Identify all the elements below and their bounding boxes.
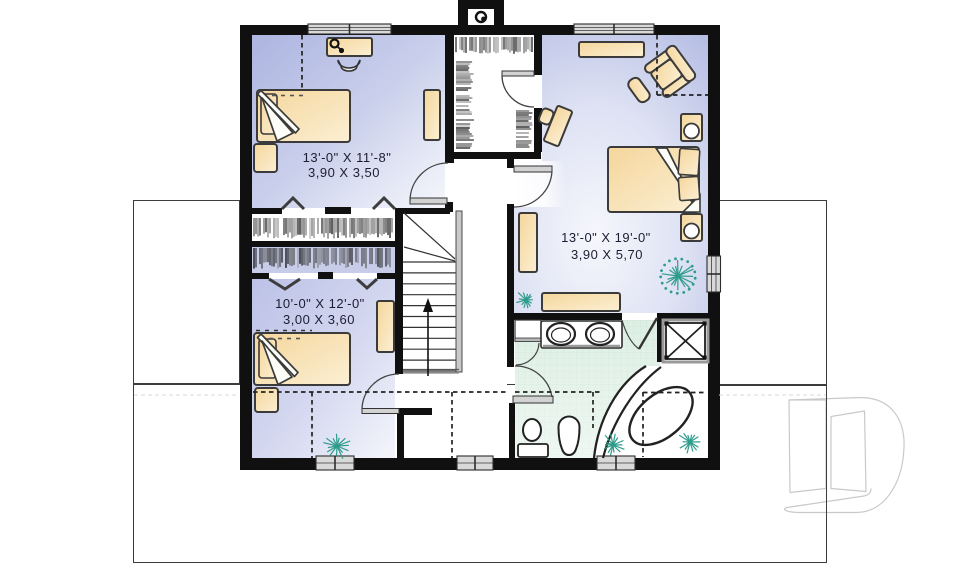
svg-text:13'-0" X 19'-0": 13'-0" X 19'-0" (561, 230, 651, 245)
svg-text:10'-0" X 12'-0": 10'-0" X 12'-0" (275, 296, 365, 311)
svg-text:3,00 X 3,60: 3,00 X 3,60 (283, 312, 355, 327)
svg-text:13'-0" X 11'-8": 13'-0" X 11'-8" (303, 150, 392, 165)
svg-text:3,90 X 5,70: 3,90 X 5,70 (571, 247, 643, 262)
svg-text:3,90 X 3,50: 3,90 X 3,50 (308, 165, 380, 180)
